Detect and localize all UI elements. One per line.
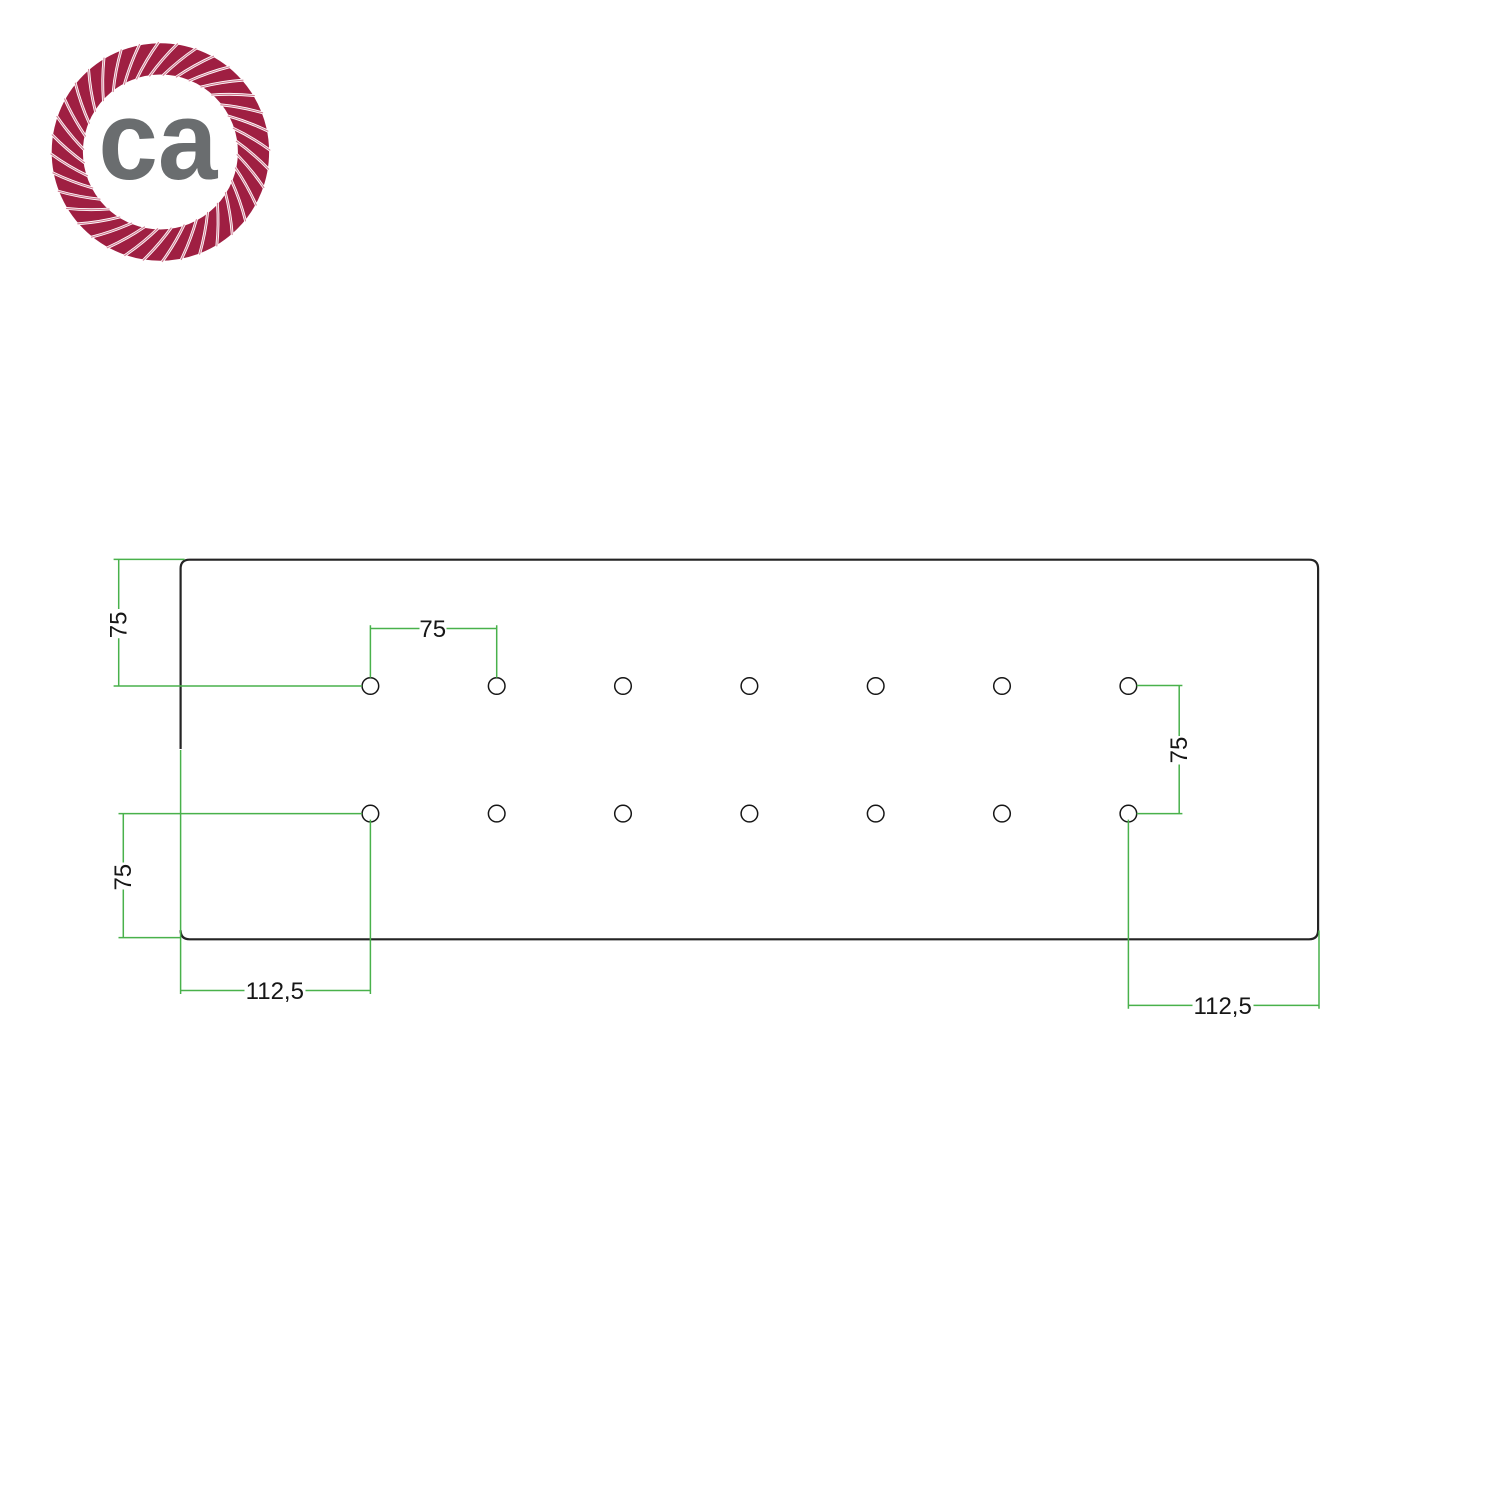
svg-text:75: 75 <box>105 612 132 639</box>
svg-text:ca: ca <box>98 78 218 203</box>
svg-text:75: 75 <box>110 864 137 891</box>
svg-text:112,5: 112,5 <box>1194 993 1252 1020</box>
svg-text:75: 75 <box>419 616 446 643</box>
svg-text:75: 75 <box>1166 737 1193 764</box>
svg-text:112,5: 112,5 <box>246 978 304 1005</box>
